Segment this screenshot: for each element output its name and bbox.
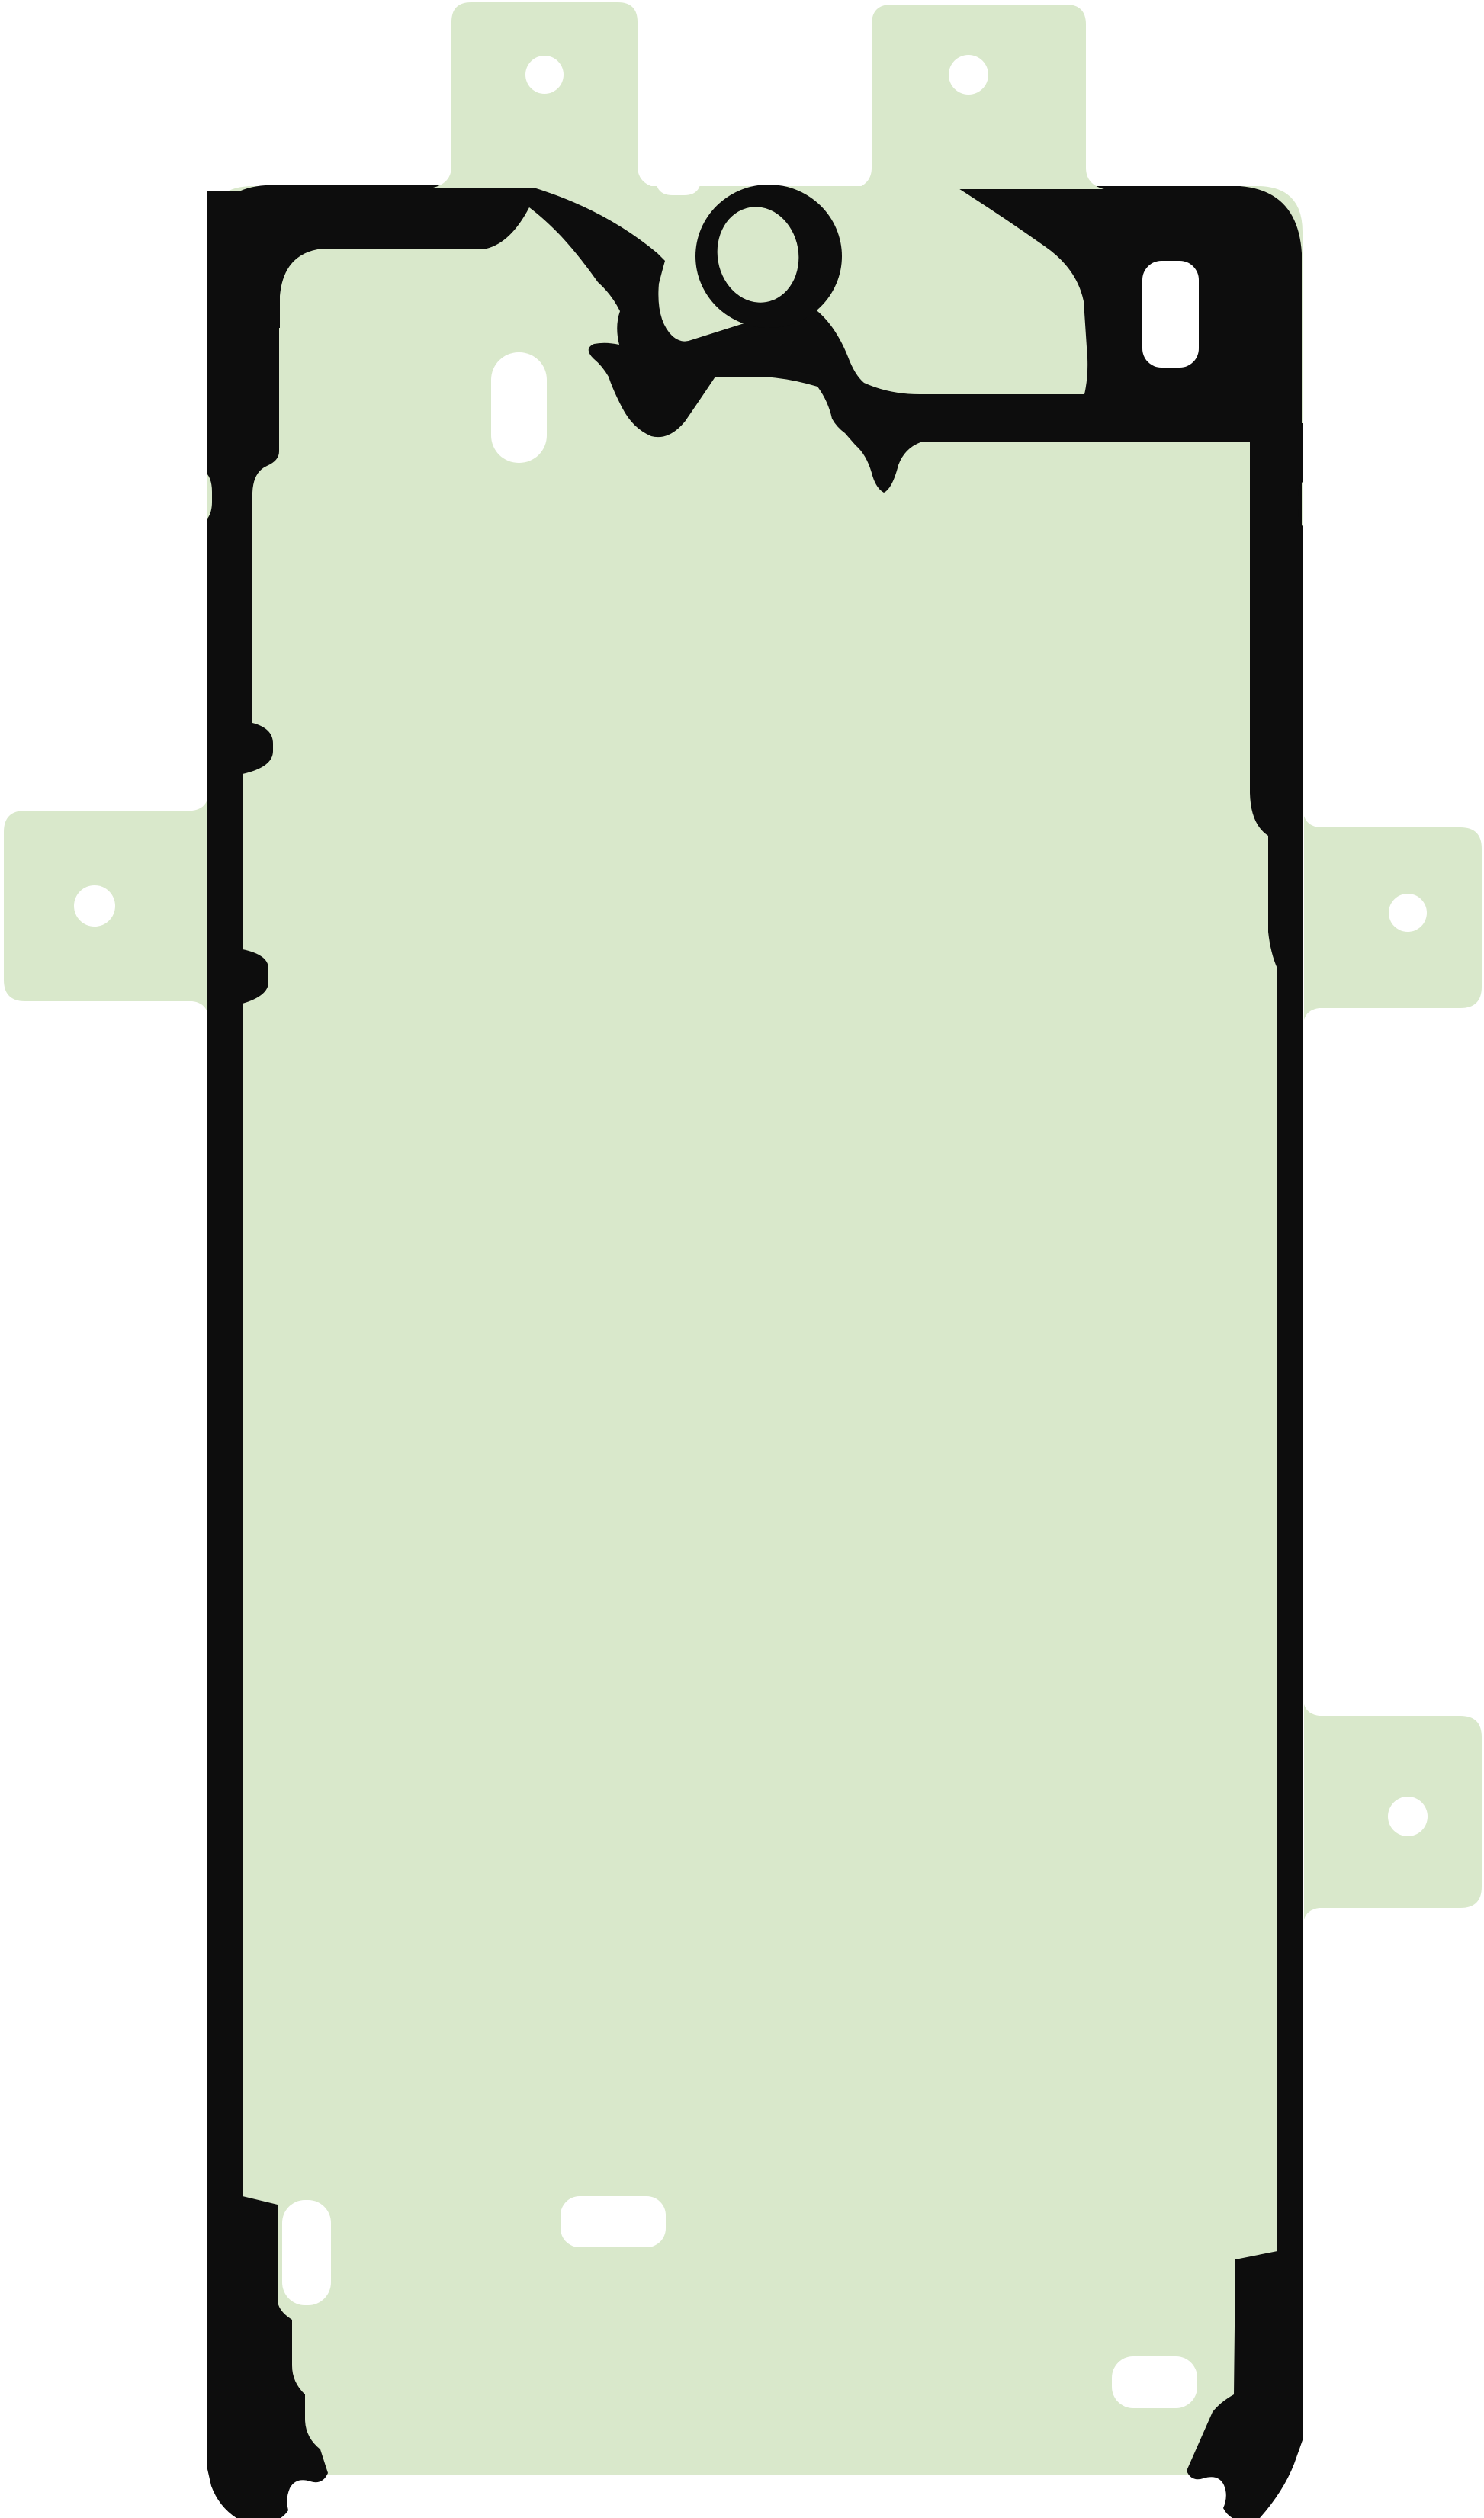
cutout-upper-right-vertical	[1142, 261, 1199, 368]
cutout-top-edge-notch	[656, 0, 701, 195]
cutout-lower-center-horizontal	[561, 2196, 666, 2247]
cutout-lower-left-vertical	[282, 2200, 331, 2305]
product-image	[0, 0, 1484, 2518]
tab-hole-right-lower	[1388, 1797, 1428, 1836]
cutout-lower-right-horizontal	[1112, 2356, 1197, 2408]
pull-tab-top-left	[433, 2, 656, 188]
tab-hole-left-middle	[74, 885, 115, 927]
sheet-body	[207, 186, 1303, 2475]
cutout-upper-left-vertical	[491, 352, 547, 463]
adhesive-sticker-illustration	[0, 0, 1484, 2518]
tab-hole-top-left	[525, 56, 564, 94]
pull-tab-top-right	[853, 5, 1104, 189]
tab-hole-top-right	[949, 55, 988, 95]
tab-hole-right-middle	[1389, 894, 1427, 932]
